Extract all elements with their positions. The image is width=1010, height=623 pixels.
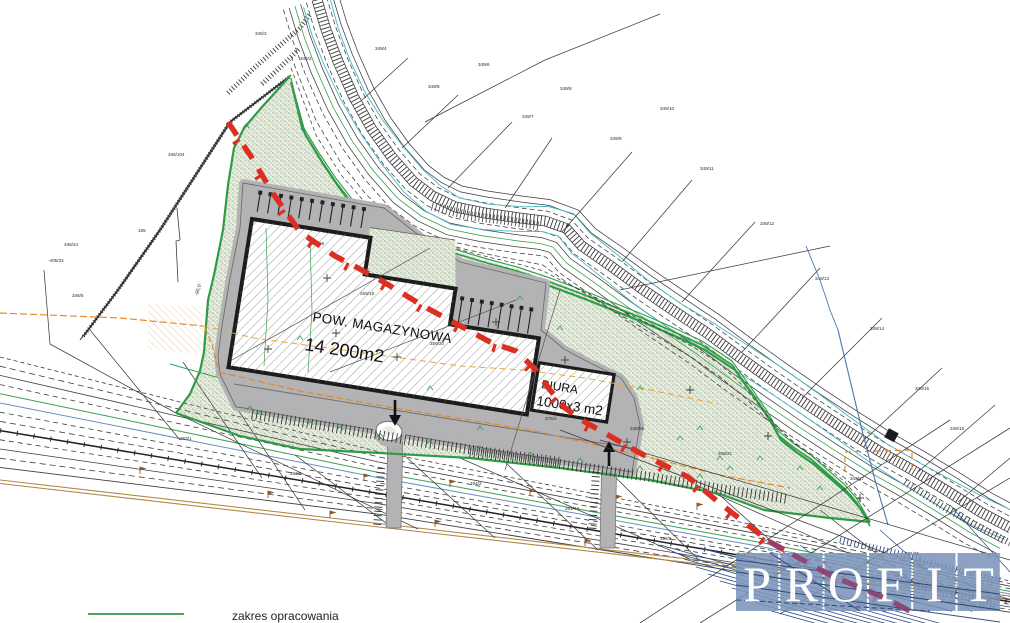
svg-text:349/4: 349/4 (375, 46, 387, 51)
svg-text:349/6: 349/6 (478, 62, 490, 67)
svg-text:349/9: 349/9 (610, 136, 622, 141)
svg-text:262/5: 262/5 (290, 471, 302, 476)
svg-text:349/12: 349/12 (760, 221, 774, 226)
svg-text:P: P (743, 556, 771, 612)
svg-text:346/2: 346/2 (300, 56, 312, 61)
svg-text:346/3: 346/3 (255, 31, 267, 36)
svg-text:zakres opracowania: zakres opracowania (232, 609, 339, 623)
svg-text:261/64: 261/64 (565, 506, 579, 511)
svg-text:259/20: 259/20 (430, 341, 444, 346)
svg-text:I: I (926, 556, 943, 612)
svg-text:346/24: 346/24 (64, 242, 78, 247)
svg-text:349/15: 349/15 (915, 386, 929, 391)
svg-text:346/5: 346/5 (72, 293, 84, 298)
svg-text:348/58: 348/58 (630, 426, 644, 431)
svg-text:194/2: 194/2 (470, 481, 482, 486)
svg-text:346/104: 346/104 (168, 152, 185, 157)
svg-text:-405/33: -405/33 (48, 258, 64, 263)
svg-text:349/11: 349/11 (700, 166, 714, 171)
svg-text:349/8: 349/8 (560, 86, 572, 91)
svg-text:259/19: 259/19 (360, 291, 374, 296)
svg-text:349/7: 349/7 (522, 114, 534, 119)
svg-text:194/5: 194/5 (660, 536, 672, 541)
svg-text:349/10: 349/10 (660, 106, 674, 111)
svg-text:349/16: 349/16 (950, 426, 964, 431)
svg-text:349/17: 349/17 (850, 476, 864, 481)
svg-text:349/13: 349/13 (815, 276, 829, 281)
svg-text:T: T (963, 556, 994, 612)
svg-text:185: 185 (138, 228, 146, 233)
svg-text:263/1: 263/1 (180, 436, 192, 441)
svg-text:349/21: 349/21 (718, 451, 732, 456)
svg-text:R: R (785, 556, 819, 612)
svg-text:349/14: 349/14 (870, 326, 884, 331)
svg-text:375/2: 375/2 (545, 416, 557, 421)
svg-text:349/5: 349/5 (428, 84, 440, 89)
